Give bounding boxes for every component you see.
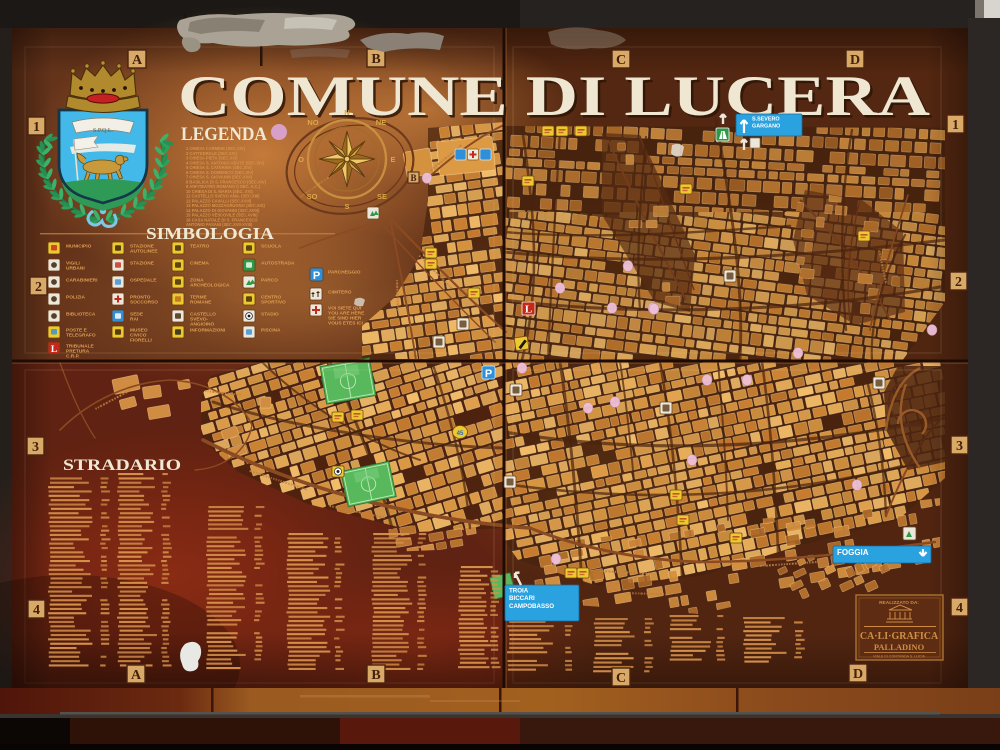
svg-text:NE: NE [376, 118, 386, 127]
svg-text:P: P [313, 270, 320, 282]
svg-text:BICCARI: BICCARI [509, 595, 535, 602]
svg-text:B: B [371, 52, 380, 67]
svg-text:TELEGRAFO: TELEGRAFO [66, 333, 96, 339]
svg-text:D: D [850, 53, 860, 68]
svg-text:A: A [131, 668, 142, 683]
svg-text:VOUS ETES ICI: VOUS ETES ICI [328, 321, 364, 327]
svg-text:O: O [298, 155, 304, 164]
svg-text:CINEMA: CINEMA [190, 261, 209, 267]
svg-text:SE: SE [377, 192, 387, 201]
svg-text:SCUOLA: SCUOLA [261, 244, 282, 250]
svg-text:COMUNE DI LUCERA: COMUNE DI LUCERA [178, 65, 930, 128]
svg-text:S: S [344, 202, 349, 211]
svg-text:B: B [371, 668, 380, 683]
svg-text:SOCCORSO: SOCCORSO [130, 300, 158, 306]
svg-text:POLIZIA: POLIZIA [66, 295, 85, 301]
svg-text:PALLADINO: PALLADINO [874, 642, 925, 652]
svg-text:INFORMAZIONI: INFORMAZIONI [190, 328, 226, 334]
svg-text:STAZIONE: STAZIONE [130, 261, 155, 267]
svg-text:MUNICIPIO: MUNICIPIO [66, 244, 92, 250]
svg-text:ROMANE: ROMANE [190, 300, 212, 306]
svg-text:BIBLIOTECA: BIBLIOTECA [66, 312, 96, 318]
svg-text:E: E [390, 155, 395, 164]
svg-text:SPORTIVO: SPORTIVO [261, 300, 286, 306]
svg-text:STADIO: STADIO [261, 312, 279, 318]
svg-text:TROIA: TROIA [509, 587, 529, 594]
svg-text:RAI: RAI [130, 317, 139, 323]
svg-text:CIMITERO: CIMITERO [328, 290, 352, 296]
svg-text:NO: NO [307, 118, 318, 127]
svg-text:CAMPOBASSO: CAMPOBASSO [509, 603, 554, 610]
svg-text:1: 1 [952, 118, 959, 133]
svg-text:N: N [344, 108, 349, 117]
svg-text:2: 2 [35, 280, 42, 295]
svg-text:C: C [616, 671, 626, 686]
svg-text:CA·LI·GRAFICA: CA·LI·GRAFICA [860, 631, 939, 642]
svg-text:SIMBOLOGIA: SIMBOLOGIA [146, 224, 275, 243]
svg-text:B: B [410, 173, 416, 183]
svg-text:PARCO: PARCO [261, 278, 278, 284]
svg-text:2: 2 [955, 275, 962, 290]
svg-text:ANGIOINO: ANGIOINO [190, 322, 215, 328]
svg-text:AUTOLINEE: AUTOLINEE [130, 249, 158, 255]
svg-text:AUTOSTRADA: AUTOSTRADA [261, 261, 295, 267]
svg-text:4: 4 [956, 601, 963, 616]
svg-text:FOGGIA: FOGGIA [837, 548, 869, 557]
svg-text:3: 3 [956, 439, 963, 454]
svg-text:STRADARIO: STRADARIO [63, 457, 181, 474]
svg-text:C: C [616, 53, 626, 68]
svg-text:45: 45 [457, 431, 464, 437]
svg-text:A: A [132, 53, 143, 68]
svg-text:ARCHEOLOGICA: ARCHEOLOGICA [190, 283, 230, 289]
svg-text:LEGENDA: LEGENDA [181, 124, 267, 145]
svg-text:1: 1 [33, 120, 40, 135]
svg-text:SO: SO [307, 192, 318, 201]
svg-text:VIALE DI CONTRADA S. LUCIA: VIALE DI CONTRADA S. LUCIA [873, 655, 925, 659]
svg-text:GARGANO: GARGANO [752, 124, 780, 130]
svg-text:4: 4 [33, 603, 40, 618]
svg-text:C.R.P.: C.R.P. [66, 354, 80, 360]
svg-text:D: D [853, 667, 863, 682]
svg-text:TEATRO: TEATRO [190, 244, 210, 250]
svg-text:L: L [525, 304, 532, 316]
svg-text:S.P.Q.L.: S.P.Q.L. [93, 128, 114, 134]
svg-text:PARCHEGGIO: PARCHEGGIO [328, 270, 361, 276]
svg-text:S.SEVERO: S.SEVERO [752, 117, 780, 123]
svg-text:P: P [485, 368, 492, 380]
svg-text:OSPEDALE: OSPEDALE [130, 278, 157, 284]
svg-text:3: 3 [32, 440, 39, 455]
svg-text:FIORELLI: FIORELLI [130, 338, 153, 344]
svg-text:PISCINA: PISCINA [261, 328, 281, 334]
svg-text:L: L [51, 345, 57, 355]
svg-text:CARABINIERI: CARABINIERI [66, 278, 98, 284]
svg-text:URBANI: URBANI [66, 266, 85, 272]
